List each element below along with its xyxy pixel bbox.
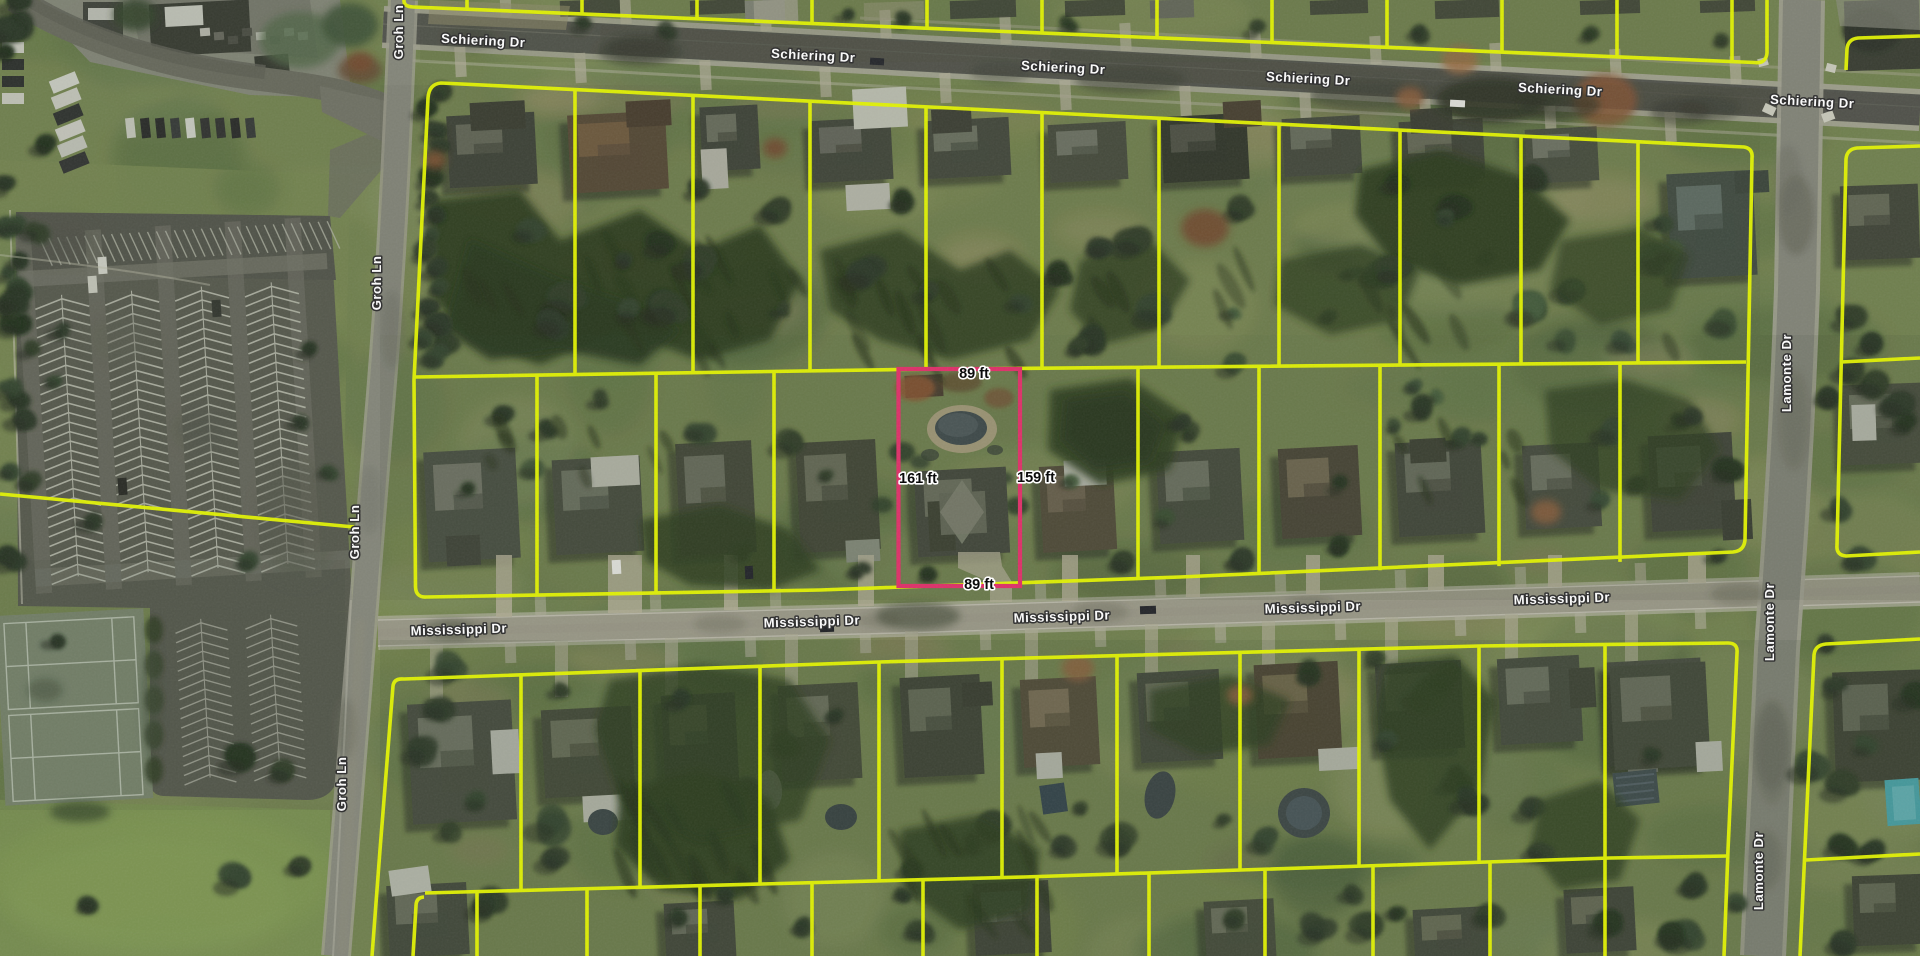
svg-text:Mississippi Dr: Mississippi Dr: [763, 612, 860, 630]
svg-text:Lamonte Dr: Lamonte Dr: [1762, 583, 1777, 661]
svg-text:89 ft: 89 ft: [964, 577, 994, 593]
svg-text:Mississippi Dr: Mississippi Dr: [1264, 598, 1361, 616]
svg-text:89 ft: 89 ft: [959, 366, 989, 382]
svg-text:Groh Ln: Groh Ln: [347, 505, 362, 560]
svg-text:Groh Ln: Groh Ln: [391, 5, 406, 60]
svg-text:Mississippi Dr: Mississippi Dr: [1513, 589, 1610, 607]
svg-text:159 ft: 159 ft: [1017, 470, 1055, 486]
svg-text:Mississippi Dr: Mississippi Dr: [410, 620, 507, 638]
svg-text:Mississippi Dr: Mississippi Dr: [1013, 607, 1110, 625]
svg-text:Lamonte Dr: Lamonte Dr: [1751, 832, 1766, 910]
svg-text:161 ft: 161 ft: [899, 471, 937, 487]
svg-text:Groh Ln: Groh Ln: [369, 256, 384, 311]
svg-text:Groh Ln: Groh Ln: [334, 757, 349, 812]
svg-text:Lamonte Dr: Lamonte Dr: [1779, 334, 1794, 412]
